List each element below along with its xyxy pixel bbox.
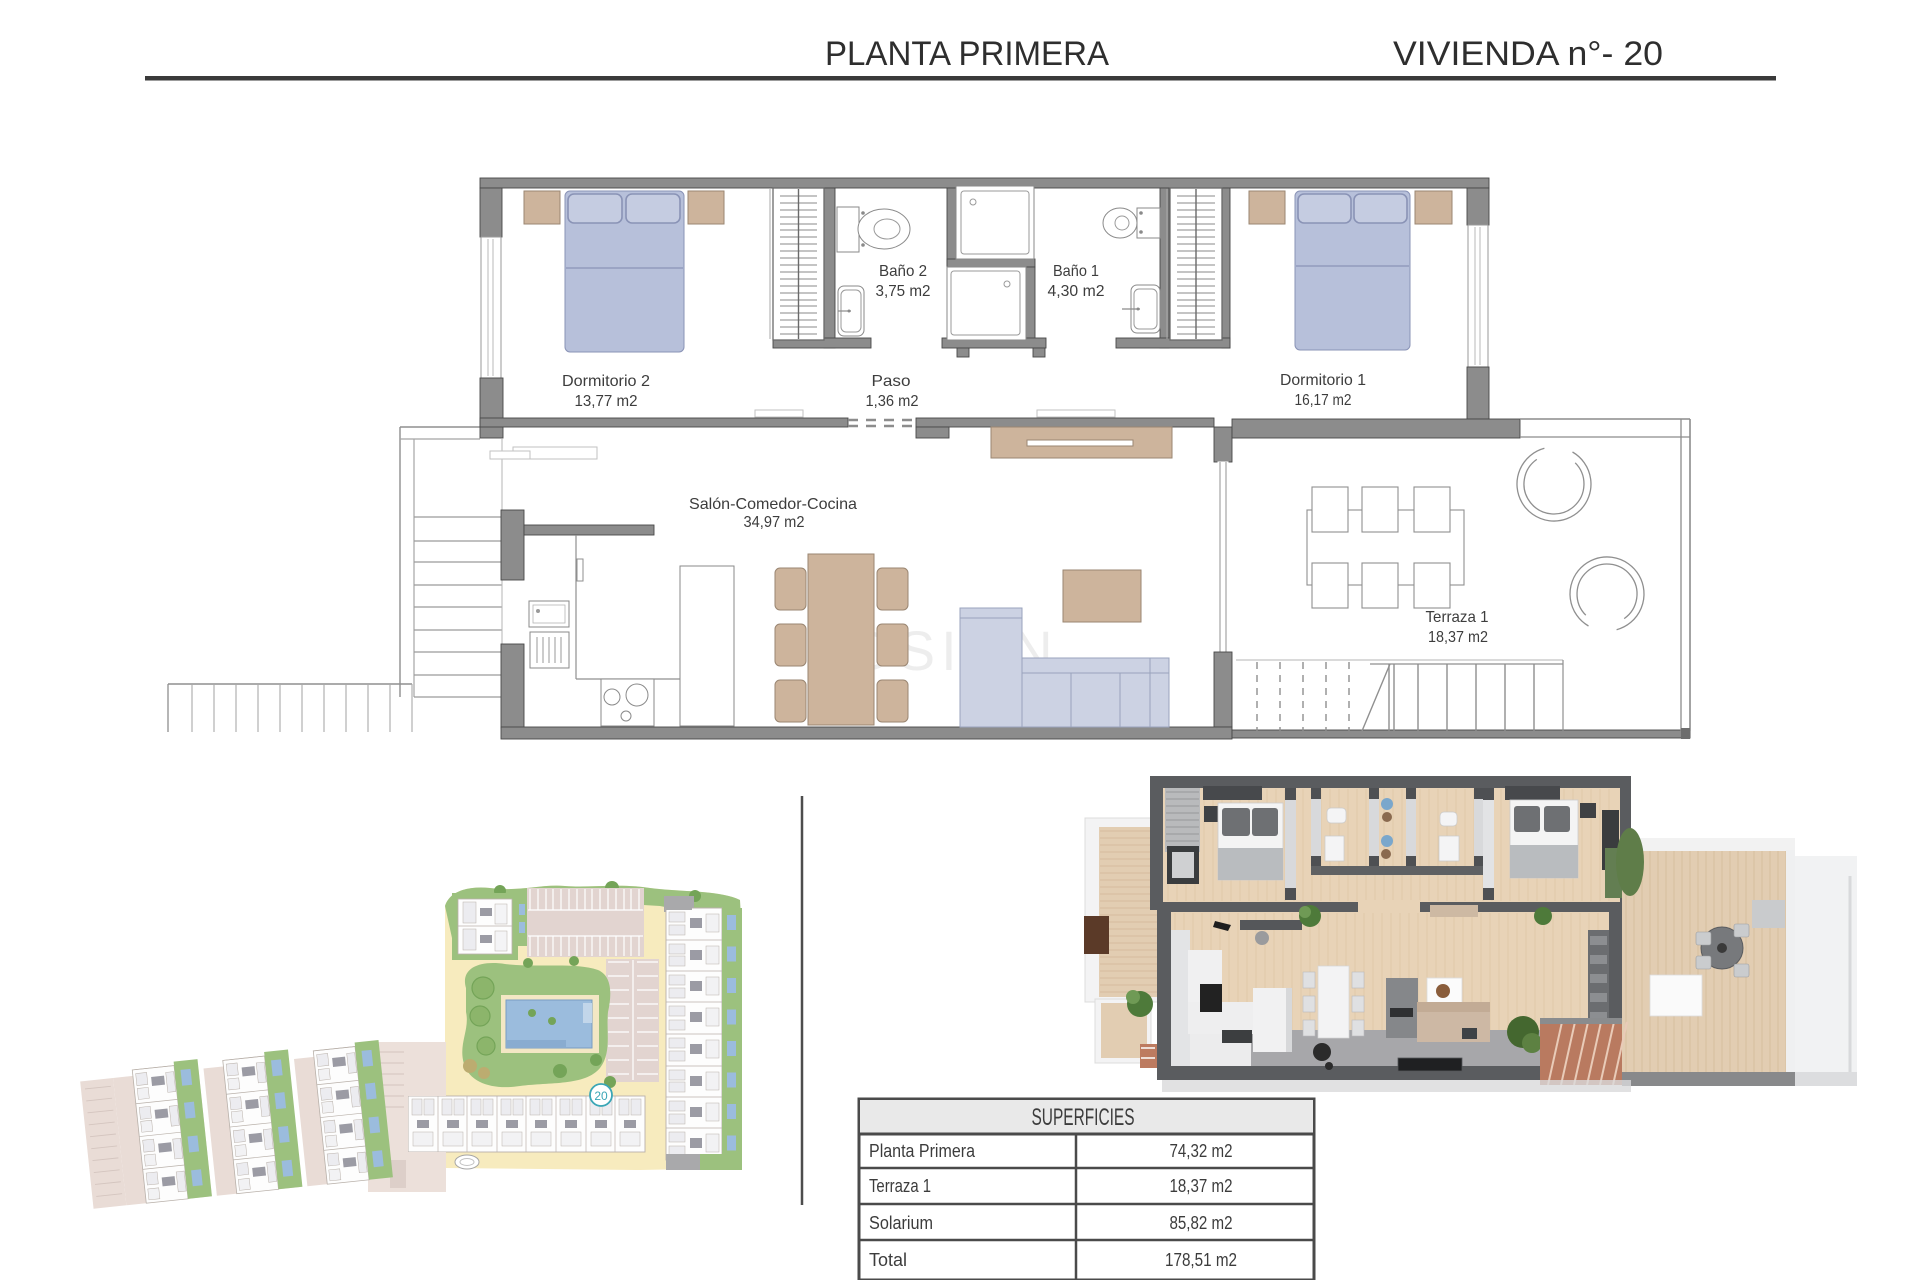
- svg-text:18,37 m2: 18,37 m2: [1170, 1176, 1233, 1196]
- svg-text:Dormitorio 1: Dormitorio 1: [1280, 372, 1366, 389]
- svg-text:13,77 m2: 13,77 m2: [575, 393, 638, 410]
- svg-text:Paso: Paso: [872, 373, 911, 390]
- svg-text:3,75 m2: 3,75 m2: [876, 283, 931, 300]
- svg-text:VIVIENDA n°- 20: VIVIENDA n°- 20: [1393, 35, 1663, 73]
- svg-text:Solarium: Solarium: [869, 1213, 933, 1233]
- svg-text:Total: Total: [869, 1250, 907, 1270]
- svg-text:Dormitorio 2: Dormitorio 2: [562, 373, 650, 390]
- svg-text:SUPERFICIES: SUPERFICIES: [1032, 1104, 1135, 1131]
- svg-text:PLANTA PRIMERA: PLANTA PRIMERA: [825, 35, 1109, 73]
- svg-text:20: 20: [594, 1089, 608, 1103]
- svg-text:Baño 2: Baño 2: [879, 263, 927, 280]
- svg-text:Planta Primera: Planta Primera: [869, 1141, 976, 1161]
- svg-text:Baño 1: Baño 1: [1053, 263, 1099, 280]
- svg-text:18,37 m2: 18,37 m2: [1428, 629, 1488, 646]
- svg-text:34,97 m2: 34,97 m2: [744, 514, 805, 531]
- svg-text:16,17 m2: 16,17 m2: [1295, 392, 1352, 409]
- svg-text:4,30 m2: 4,30 m2: [1048, 283, 1105, 300]
- svg-text:Salón-Comedor-Cocina: Salón-Comedor-Cocina: [689, 496, 857, 513]
- svg-text:74,32 m2: 74,32 m2: [1170, 1141, 1233, 1161]
- svg-text:178,51 m2: 178,51 m2: [1165, 1250, 1237, 1270]
- svg-text:Terraza 1: Terraza 1: [1426, 609, 1489, 626]
- svg-text:85,82 m2: 85,82 m2: [1170, 1213, 1233, 1233]
- svg-text:Terraza 1: Terraza 1: [869, 1176, 931, 1196]
- svg-text:1,36 m2: 1,36 m2: [866, 393, 919, 410]
